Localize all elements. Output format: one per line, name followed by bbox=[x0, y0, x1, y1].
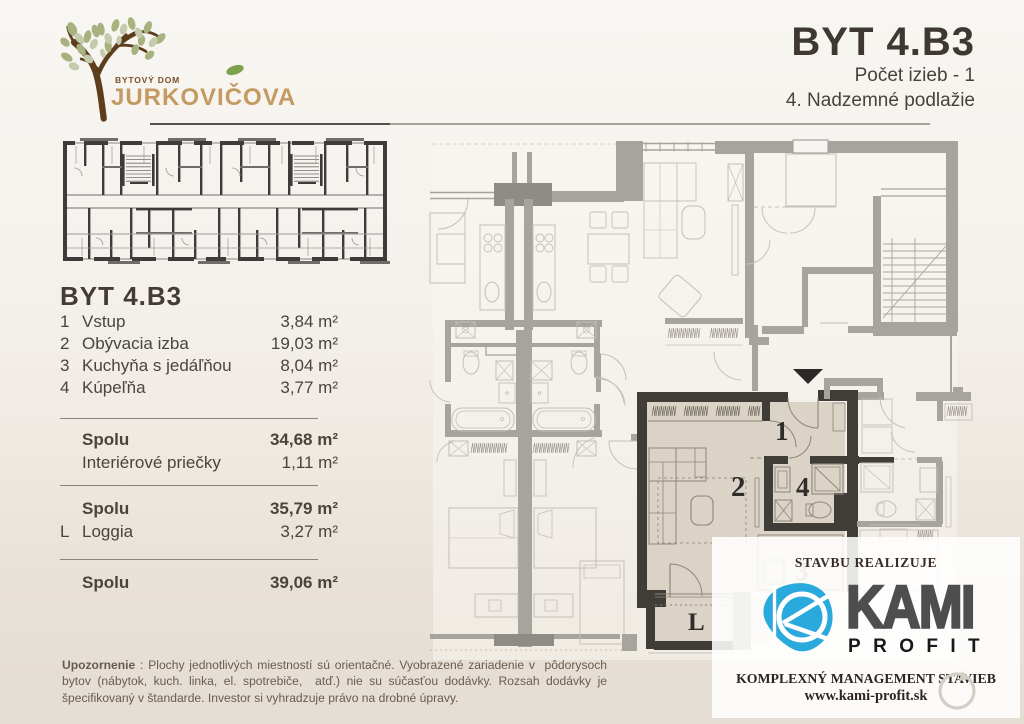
svg-text:PROFIT: PROFIT bbox=[848, 636, 992, 657]
svg-text:KAMI: KAMI bbox=[846, 582, 974, 640]
svg-text:L: L bbox=[688, 609, 705, 636]
svg-text:2: 2 bbox=[731, 471, 746, 503]
svg-text:1: 1 bbox=[775, 416, 789, 446]
svg-text:4: 4 bbox=[796, 472, 810, 502]
